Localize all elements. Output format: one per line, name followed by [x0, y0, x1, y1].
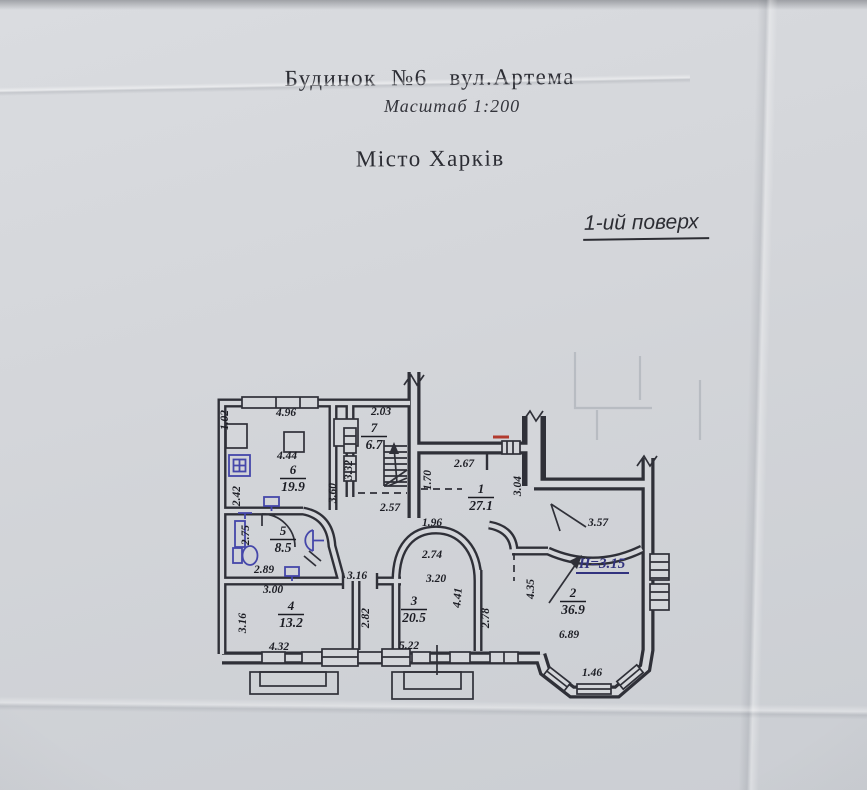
sink-icon — [305, 530, 324, 551]
dimension-label: 3.16 — [346, 570, 367, 582]
dimension-label: 3.60 — [327, 483, 339, 504]
room-area: 36.9 — [560, 602, 585, 617]
dimension-label: 3.16 — [237, 613, 249, 634]
radiator — [650, 584, 669, 610]
porch-center — [392, 672, 473, 699]
room-number: 4 — [287, 598, 295, 613]
room-label-2: 236.9 — [560, 585, 586, 617]
dimension-label: 3.04 — [512, 476, 524, 497]
room-number: 2 — [569, 585, 577, 600]
room-number: 5 — [280, 523, 287, 538]
toilet-icon — [233, 546, 258, 565]
dimension-label: 3.32 — [343, 460, 355, 481]
dimension-label: 2.89 — [253, 564, 274, 576]
dimension-label: 1.02 — [219, 410, 231, 430]
vent-shaft-icon — [229, 455, 250, 476]
room-number: 6 — [290, 462, 297, 477]
room-number: 1 — [478, 481, 485, 496]
dimension-label: 1.96 — [422, 517, 442, 529]
dimension-label: 4.32 — [268, 641, 289, 653]
dimension-label: 6.89 — [559, 629, 579, 641]
room-label-1: 127.1 — [468, 481, 494, 513]
room-area: 27.1 — [468, 498, 493, 513]
room-area: 20.5 — [401, 610, 426, 625]
room-label-4: 413.2 — [278, 598, 304, 630]
window-bottom — [358, 652, 382, 663]
dimension-label: 4.44 — [276, 450, 297, 462]
radiator — [650, 554, 669, 580]
dimension-label: 4.35 — [525, 579, 537, 600]
window-room1 — [502, 441, 520, 454]
dimension-label: 3.00 — [262, 584, 283, 596]
height-note-text: H=3.15 — [578, 556, 626, 572]
ghost-lines — [575, 352, 700, 440]
room-number: 3 — [410, 593, 418, 608]
dimension-label: 2.03 — [370, 406, 391, 418]
room-label-6: 619.9 — [280, 462, 306, 494]
dimension-label: 4.41 — [451, 587, 465, 609]
photographed-floor-plan-page: Будинок №6 вул.Артема Місто Харків Масшт… — [0, 0, 867, 790]
room-label-7: 76.7 — [361, 420, 387, 452]
window-bottom — [412, 652, 430, 663]
porch-left — [250, 672, 338, 694]
tap-icon — [238, 513, 252, 519]
dimension-label: 2.74 — [421, 549, 442, 561]
floor-plan-svg: H=3.15 1.024.964.442.422.033.323.602.571… — [0, 0, 867, 790]
entrance-arrow — [549, 555, 582, 603]
room-label-5: 58.5 — [270, 523, 296, 555]
dimension-label: 1.70 — [422, 470, 434, 490]
height-note: H=3.15 — [576, 556, 629, 573]
dimension-label: 2.42 — [231, 486, 243, 507]
window-bottom — [262, 652, 285, 663]
window-bottom — [450, 652, 470, 663]
room-number: 7 — [371, 420, 378, 435]
room-label-3: 320.5 — [401, 593, 427, 625]
room-area: 13.2 — [279, 615, 303, 630]
stair-wall-pier — [344, 428, 356, 453]
room-area: 6.7 — [366, 437, 384, 452]
dimension-label: 2.67 — [453, 458, 475, 470]
dimension-label: 4.96 — [275, 407, 296, 419]
dimension-label: 2.75 — [240, 525, 252, 546]
stairs — [384, 440, 407, 486]
dimension-label: 2.57 — [379, 502, 401, 514]
dimension-label: 2.82 — [360, 608, 372, 629]
dimension-label: 3.57 — [587, 517, 609, 529]
dimension-label: 3.20 — [425, 573, 446, 585]
window-bottom — [302, 652, 322, 663]
dimension-label: 5.22 — [399, 640, 419, 652]
column — [284, 432, 304, 452]
room-area: 19.9 — [281, 479, 305, 494]
dimension-label: 1.46 — [582, 667, 602, 679]
room-area: 8.5 — [275, 540, 292, 555]
door-leaf-niche — [551, 504, 586, 531]
dimension-label: 2.78 — [480, 608, 492, 629]
